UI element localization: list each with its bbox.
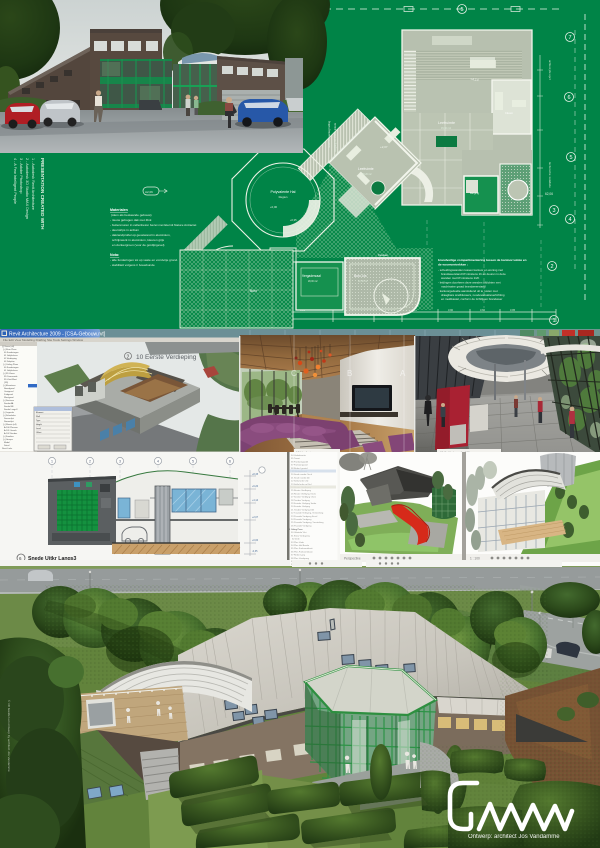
svg-text:22,40 m2: 22,40 m2 (358, 281, 368, 283)
svg-text:Westgevel: Westgevel (4, 396, 14, 399)
svg-text:[+] Legends: [+] Legends (3, 412, 14, 414)
svg-text:45,60 m2: 45,60 m2 (441, 127, 452, 130)
svg-text:C: C (291, 369, 297, 378)
svg-text:Nota:: Nota: (110, 253, 119, 257)
svg-text:3.60: 3.60 (480, 308, 486, 312)
svg-text:33 Ples Vode: 33 Ples Vode (291, 542, 305, 544)
svg-text:A2,06: A2,06 (145, 190, 153, 194)
svg-text:- buitenmuren in cellenbeton b: - buitenmuren in cellenbeton bezet met E… (110, 223, 196, 227)
svg-text:{3D}: {3D} (4, 382, 8, 384)
svg-text:Noordgevel: Noordgevel (4, 387, 15, 390)
svg-text:2: 2 (89, 460, 91, 464)
svg-text:28,00 m2: 28,00 m2 (308, 281, 318, 283)
svg-text:38 Relee Lynatof: 38 Relee Lynatof (291, 467, 308, 470)
svg-text:29 Fesider Verbyng Snide: 29 Fesider Verbyng Snide (291, 502, 317, 505)
svg-text:PRESENTATION CREATED WITH: PRESENTATION CREATED WITH (40, 158, 45, 230)
svg-text:+8,45: +8,45 (252, 473, 259, 476)
svg-text:1 Celing Pens: 1 Celing Pens (289, 529, 304, 531)
svg-text:+2,07: +2,07 (252, 516, 259, 519)
svg-text:26 Rester Verblyng Oncki: 26 Rester Verblyng Oncki (291, 492, 316, 495)
svg-text:A-102 Snedes: A-102 Snedes (4, 432, 17, 435)
svg-text:34 Ples Hal Bende: 34 Ples Hal Bende (291, 545, 310, 547)
svg-text:4 - A Few Intelligent People: 4 - A Few Intelligent People (13, 158, 17, 204)
svg-text:File Edit View Modelling D: File Edit View Modelling Drafting Site T… (3, 338, 84, 342)
svg-text:wanden met Rf minstens 1/2h: wanden met Rf minstens 1/2h (441, 276, 480, 280)
svg-text:[+] Families: [+] Families (3, 436, 14, 438)
svg-text:- dakrandprofiel op gevelwand: - dakrandprofiel op gevelwand in alumini… (110, 233, 171, 237)
svg-text:Wall: Wall (36, 416, 40, 418)
svg-text:38 Ples Verdaperg: 38 Ples Verdaperg (291, 557, 310, 560)
svg-text:achterzijde oprit: achterzijde oprit (548, 60, 552, 80)
svg-text:Buro Jos: Buro Jos (354, 274, 367, 278)
svg-text:22 Tuseide Verbyerg, Versterki: 22 Tuseide Verbyerg, Versterking (291, 512, 324, 515)
svg-text:6: 6 (229, 460, 231, 464)
svg-text:6: 6 (567, 95, 570, 101)
svg-text:Materialen: Materialen (110, 208, 128, 212)
svg-text:34 Vedaleincite: 34 Vedaleincite (291, 454, 307, 457)
svg-text:schrijnwerk in aluminium, kleu: schrijnwerk in aluminium, kleuren grijs (112, 238, 165, 242)
svg-text:- stabiliteit volgens ir bouwk: - stabiliteit volgens ir bouwkunde (110, 263, 155, 267)
svg-text:- alle funderingen tot op vast: - alle funderingen tot op vaste en vorst… (110, 258, 178, 262)
svg-text:B: B (347, 369, 352, 378)
svg-text:(idem als bestaande gebouw): (idem als bestaande gebouw) (111, 213, 152, 217)
svg-text:Snede BB: Snede BB (4, 406, 14, 408)
svg-text:01 Gelijkvloers: 01 Gelijkvloers (4, 354, 18, 357)
svg-text:3 - Adobe Photoshop: 3 - Adobe Photoshop (19, 158, 23, 193)
svg-text:3D Doorsnede: 3D Doorsnede (4, 375, 18, 378)
svg-text:7: 7 (568, 35, 571, 41)
svg-text:Leefruimte: Leefruimte (438, 121, 455, 125)
svg-text:Offset: Offset (36, 431, 42, 434)
svg-text:62,06: 62,06 (545, 192, 553, 196)
svg-text:00 Funderingen: 00 Funderingen (4, 366, 19, 369)
svg-text:5: 5 (569, 155, 572, 161)
svg-text:25 Puseide Verbyerg, Versterki: 25 Puseide Verbyerg, Versterking (291, 521, 324, 524)
svg-text:en donkergroen (voor de gordij: en donkergroen (voor de gordijngevel) (112, 243, 164, 247)
svg-text:Leefruimte: Leefruimte (358, 167, 374, 171)
svg-text:Snede AA: Snede AA (4, 402, 14, 405)
svg-text:35 Ples Funkoentkasti: 35 Ples Funkoentkasti (291, 547, 313, 550)
svg-text:2 - Autodesk 3D Studio MAX Des: 2 - Autodesk 3D Studio MAX Design (25, 158, 29, 219)
svg-text:1 - Autodesk Revit Architectur: 1 - Autodesk Revit Architecture (31, 158, 35, 210)
svg-text:02 Verdieping: 02 Verdieping (4, 357, 18, 360)
svg-text:Vergaderzaal: Vergaderzaal (302, 274, 321, 278)
svg-text:32 Dele: 32 Dele (292, 539, 300, 541)
svg-text:28 Tesider Verbyng: 28 Tesider Verbyng (291, 499, 310, 502)
svg-text:© 3D beelden en ontwerp by arc: © 3D beelden en ontwerp by architect Jos… (7, 700, 11, 772)
svg-text:23 Puseide Verbyerg Scusl: 23 Puseide Verbyerg Scusl (291, 515, 318, 518)
svg-text:Revit Links: Revit Links (2, 447, 12, 450)
svg-text:brandveilige compartimentering: brandveilige compartimentering tussen de… (438, 258, 527, 262)
svg-text:Level: Level (36, 428, 41, 430)
svg-text:A: A (400, 369, 406, 378)
svg-text:27 Sestter Verblyng Onck: 27 Sestter Verblyng Onck (291, 496, 317, 499)
svg-text:4: 4 (568, 217, 571, 223)
svg-text:Snede Langs3: Snede Langs3 (4, 409, 18, 411)
svg-text:Berging: Berging (470, 191, 479, 195)
svg-text:- nieuw gebogen dak met Zink: - nieuw gebogen dak met Zink (110, 218, 152, 222)
svg-text:Ramenlijst: Ramenlijst (4, 420, 14, 423)
svg-text:5: 5 (460, 7, 463, 13)
svg-text:36 Ples Funkoentkasti: 36 Ples Funkoentkasti (291, 550, 313, 553)
svg-text:3.90: 3.90 (448, 308, 454, 312)
svg-text:Ontwerp: architect Jos Vandamm: Ontwerp: architect Jos Vandamme (468, 834, 560, 840)
svg-text:Perspective: Perspective (344, 557, 361, 561)
svg-text:+0,00: +0,00 (270, 205, 278, 209)
svg-text:20 Snale snede Onck: 20 Snale snede Onck (291, 474, 313, 476)
svg-text:22 Sella knile Ord: 22 Sella knile Ord (291, 480, 309, 483)
svg-text:Model: Model (4, 442, 10, 444)
svg-text:24 Puseide Verbyerg: 24 Puseide Verbyerg (291, 518, 312, 521)
svg-text:[+] Sheets (all): [+] Sheets (all) (3, 423, 17, 426)
svg-text:maaiveld aanleg helling: maaiveld aanleg helling (327, 120, 331, 148)
svg-text:[+] Sections: [+] Sections (3, 399, 14, 402)
svg-text:2: 2 (550, 264, 553, 270)
svg-text:Height: Height (36, 423, 42, 426)
svg-text:+4,14: +4,14 (252, 499, 259, 502)
svg-text:Polyvalente Hal: Polyvalente Hal (271, 190, 296, 194)
svg-text:3.95: 3.95 (510, 308, 516, 312)
svg-text:1: 1 (51, 460, 53, 464)
svg-text:21 Tesider Verbyng Ulel: 21 Tesider Verbyng Ulel (291, 508, 315, 511)
svg-text:35 Tweet: 35 Tweet (291, 457, 300, 460)
svg-text:Detail: Detail (4, 444, 10, 447)
svg-text:4: 4 (157, 460, 159, 464)
svg-text:20 Fesider Verbyng: 20 Fesider Verbyng (291, 505, 311, 508)
svg-text:+0,00: +0,00 (252, 539, 259, 542)
svg-text:de woonvertrekken :: de woonvertrekken : (438, 263, 468, 267)
svg-text:00 Funderingen: 00 Funderingen (4, 351, 19, 354)
svg-text:10 Eerste Verdieping: 10 Eerste Verdieping (136, 354, 197, 361)
svg-text:[+] Ceiling Plans: [+] Ceiling Plans (3, 364, 18, 366)
svg-text:toegang tot niveau inkom: toegang tot niveau inkom (333, 123, 337, 152)
svg-text:1 : 100: 1 : 100 (470, 557, 480, 561)
svg-text:+0,35: +0,35 (290, 218, 297, 222)
svg-text:31 Ewra Verdaperg: 31 Ewra Verdaperg (291, 534, 311, 537)
svg-text:2: 2 (127, 355, 130, 361)
svg-text:Deurenlijst: Deurenlijst (4, 417, 14, 420)
svg-text:5: 5 (192, 460, 194, 464)
svg-text:+2,07: +2,07 (380, 145, 388, 149)
svg-text:38,20 m2: 38,20 m2 (362, 174, 372, 176)
svg-text:30 Glimtale Vlei: 30 Glimtale Vlei (291, 531, 307, 534)
svg-text:Keuken: Keuken (378, 253, 389, 257)
svg-text:technische installatie: technische installatie (548, 162, 552, 188)
svg-text:[+] 3D Views: [+] 3D Views (3, 373, 15, 375)
svg-text:3D Zuid-West: 3D Zuid-West (4, 378, 17, 381)
svg-text:37 Relee Lyng: 37 Relee Lyng (291, 555, 306, 557)
svg-text:03 Dakplan: 03 Dakplan (4, 361, 15, 363)
svg-text:Oostgevel: Oostgevel (4, 390, 14, 393)
svg-text:36 Fundamgardel: 36 Fundamgardel (291, 460, 309, 463)
svg-text:Element: Element (36, 411, 44, 414)
svg-text:Regien: Regien (279, 195, 288, 199)
svg-text:[-] Views (all): [-] Views (all) (2, 346, 14, 348)
svg-text:26 Puseide Verbyerg: 26 Puseide Verbyerg (291, 524, 312, 527)
svg-text:-0,35: -0,35 (252, 550, 258, 553)
svg-text:machinaine graad brandweerstan: machinaine graad brandweerstand (441, 285, 486, 289)
svg-text:[+] Schedules: [+] Schedules (3, 415, 16, 417)
svg-text:Buro: Buro (250, 289, 257, 293)
svg-text:3: 3 (552, 208, 555, 214)
svg-text:21 Snale snede dle: 21 Snale snede dle (291, 477, 311, 479)
svg-text:37 Funkionpastel: 37 Funkionpastel (291, 464, 308, 467)
svg-text:[+] Floor Plans: [+] Floor Plans (3, 348, 16, 351)
svg-text:3: 3 (119, 460, 121, 464)
svg-text:[+] Groups: [+] Groups (3, 438, 13, 441)
svg-text:25 Rester Verdlepng: 25 Rester Verdlepng (291, 489, 312, 492)
svg-text:Zuidgevel: Zuidgevel (4, 394, 14, 396)
svg-text:en meldkastel, conform de rich: en meldkastel, conform de richtlijnen br… (441, 297, 502, 301)
svg-text:A-100 Plannen: A-100 Plannen (4, 426, 19, 429)
svg-text:Revit Architecture 2009 - [CSA: Revit Architecture 2009 - [CSA-Gebouw.rv… (9, 332, 106, 338)
svg-text:A-101 Gevels: A-101 Gevels (4, 429, 17, 432)
svg-text:- deurstrips in ardium: - deurstrips in ardium (110, 228, 139, 232)
svg-text:+6,20: +6,20 (252, 485, 259, 488)
svg-text:Inkom: Inkom (505, 111, 514, 115)
svg-text:01 Gelijkvloers: 01 Gelijkvloers (4, 369, 18, 372)
svg-text:[+] Elevations: [+] Elevations (3, 384, 16, 387)
